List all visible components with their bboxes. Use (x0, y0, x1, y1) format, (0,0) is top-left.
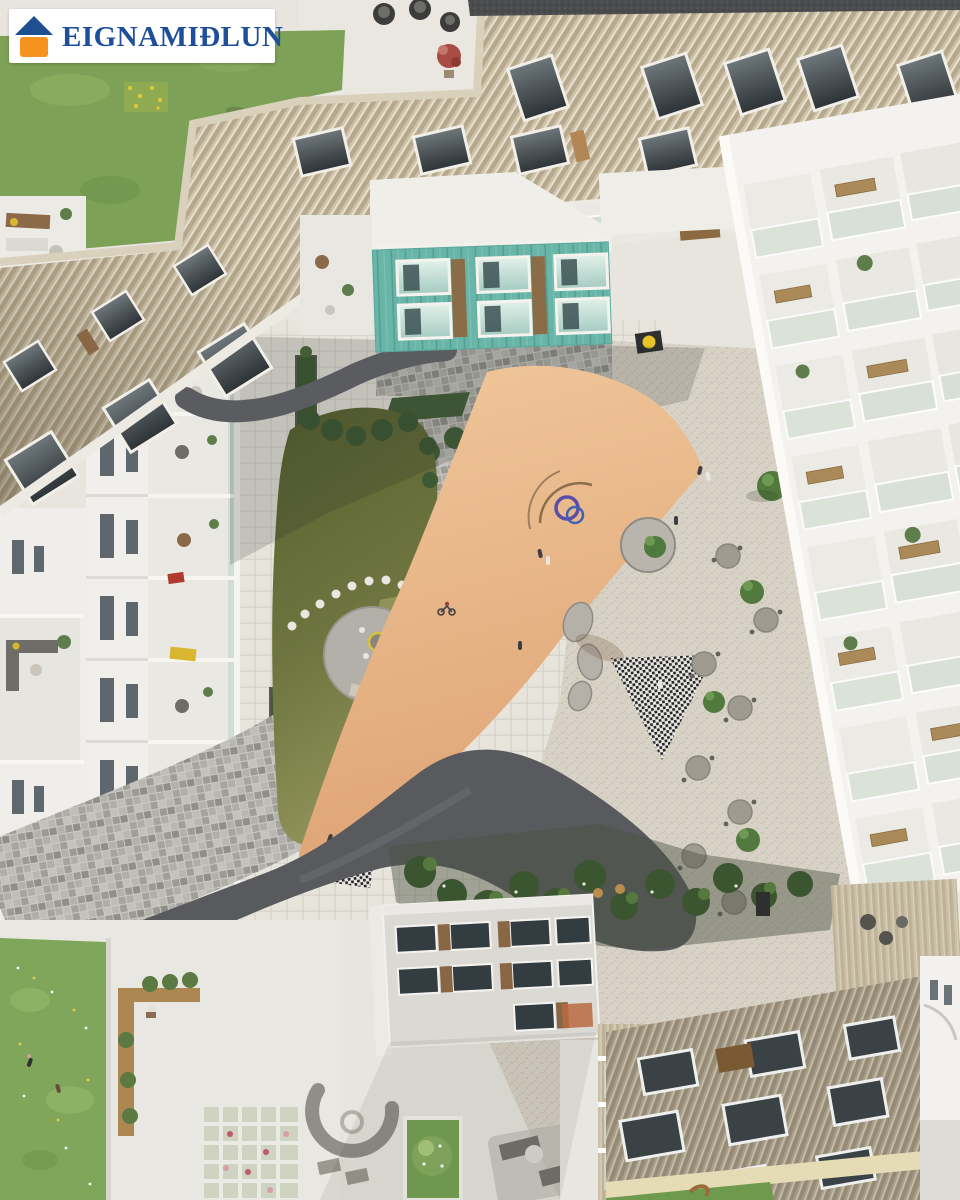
white-corner-building (920, 956, 960, 1200)
copper-teal-building (372, 238, 612, 352)
scene-canvas (0, 0, 960, 1200)
slab-building-bottom (368, 895, 600, 1057)
eignamidlun-logo: EIGNAMIÐLUN (9, 9, 275, 63)
logo-house-square (20, 37, 48, 57)
aerial-render: EIGNAMIÐLUN (0, 0, 960, 1200)
pergola (202, 1105, 300, 1200)
balcony-left-of-teal (300, 215, 372, 335)
meadow-bottom-left (0, 938, 111, 1200)
logo-roof-triangle (15, 16, 53, 35)
house-logo-icon (14, 15, 54, 57)
logo-text: EIGNAMIÐLUN (62, 21, 283, 54)
